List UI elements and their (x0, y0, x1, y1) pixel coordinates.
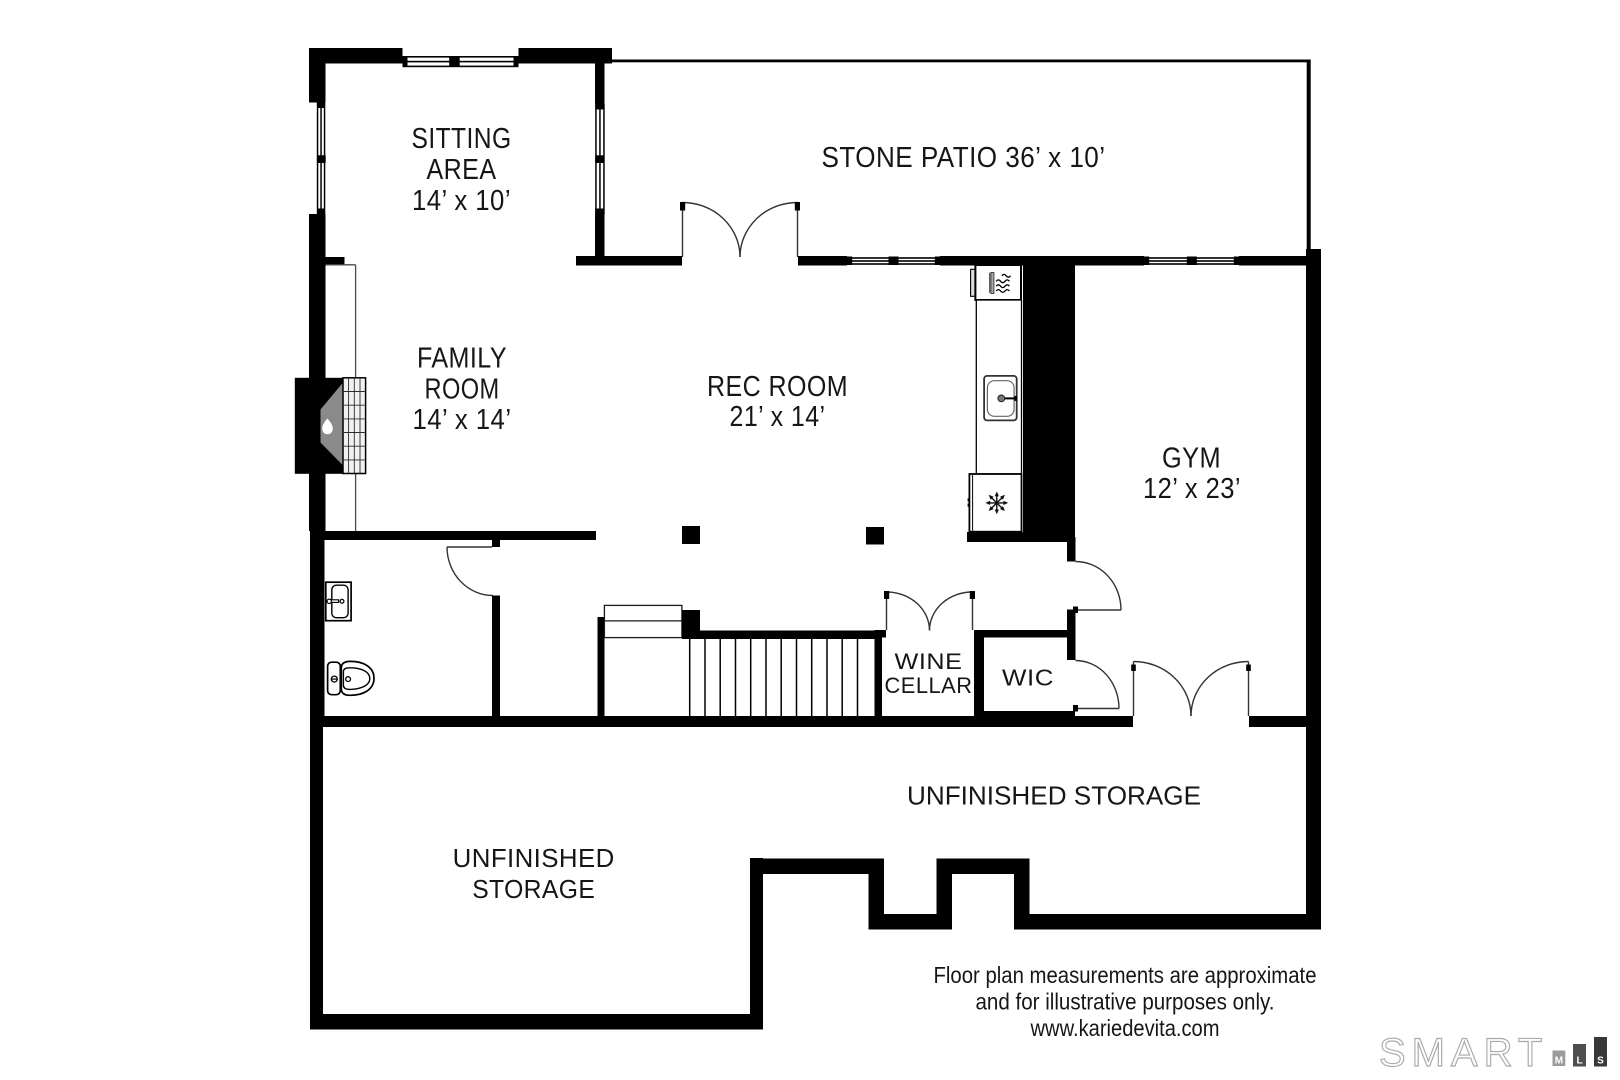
svg-text:SMART: SMART (1379, 1031, 1548, 1075)
svg-text:ROOM: ROOM (425, 374, 500, 406)
svg-text:AREA: AREA (427, 154, 497, 186)
svg-text:M: M (1555, 1056, 1563, 1067)
svg-text:14’ x 10’: 14’ x 10’ (412, 185, 511, 217)
svg-text:UNFINISHED STORAGE: UNFINISHED STORAGE (907, 783, 1201, 811)
svg-text:14’ x 14’: 14’ x 14’ (413, 404, 512, 436)
svg-text:L: L (1576, 1056, 1582, 1067)
svg-text:Floor plan measurements are ap: Floor plan measurements are approximate (934, 962, 1317, 988)
svg-text:WINE: WINE (895, 649, 963, 674)
svg-text:S: S (1597, 1056, 1604, 1067)
svg-text:CELLAR: CELLAR (885, 673, 973, 698)
svg-text:WIC: WIC (1002, 665, 1054, 691)
svg-text:and for illustrative purposes: and for illustrative purposes only. (976, 989, 1275, 1015)
svg-text:www.kariedevita.com: www.kariedevita.com (1030, 1015, 1220, 1041)
svg-text:GYM: GYM (1162, 443, 1221, 475)
svg-text:21’ x 14’: 21’ x 14’ (730, 401, 826, 433)
svg-text:STORAGE: STORAGE (472, 876, 595, 904)
svg-text:UNFINISHED: UNFINISHED (453, 845, 615, 873)
svg-text:SITTING: SITTING (412, 123, 512, 155)
svg-text:REC ROOM: REC ROOM (707, 371, 848, 403)
svg-text:FAMILY: FAMILY (417, 343, 507, 375)
svg-text:12’ x 23’: 12’ x 23’ (1143, 473, 1241, 505)
svg-text:STONE PATIO 36’ x 10’: STONE PATIO 36’ x 10’ (822, 142, 1106, 174)
